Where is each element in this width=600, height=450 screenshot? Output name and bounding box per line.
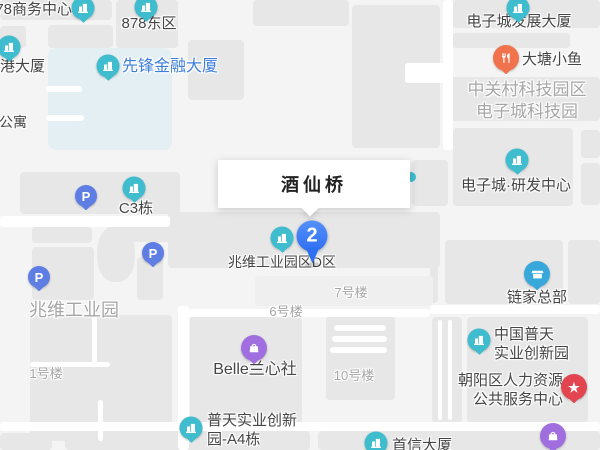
storefront-icon (531, 268, 544, 281)
numbered-marker-2[interactable]: 2 (297, 221, 328, 252)
parking-icon: P (35, 271, 44, 284)
poi-pin-lianjia-hq[interactable] (524, 261, 550, 287)
poi-pin-datang-xiaoyu[interactable] (493, 45, 519, 71)
building-block (581, 163, 600, 205)
poi-pin-belle-lanxinshe[interactable] (241, 335, 267, 361)
road (0, 422, 600, 431)
area-label-building-no10: 10号楼 (334, 367, 374, 384)
building-block (581, 130, 600, 158)
poi-pin-gang-tower[interactable] (0, 36, 21, 59)
building-icon (185, 422, 198, 435)
poi-label-china-putian[interactable]: 中国普天实业创新园 (494, 325, 569, 363)
poi-pin-xianfeng-finance[interactable] (97, 55, 120, 78)
road (405, 63, 445, 83)
poi-pin-putian-a4[interactable] (180, 417, 203, 440)
star-icon: ★ (568, 381, 580, 394)
building-icon (512, 2, 525, 15)
building-block (253, 0, 349, 26)
road (334, 325, 386, 331)
poi-pin-china-putian[interactable] (468, 329, 491, 352)
poi-label-zhaowei-d-zone[interactable]: 兆维工业园区D区 (228, 253, 336, 271)
shopping-bag-icon (547, 430, 559, 442)
building-block (568, 240, 600, 304)
poi-label-chaoyang-hr-center[interactable]: 朝阳区人力资源公共服务中心 (458, 371, 563, 409)
area-label-zgc-tech-park: 中关村科技园区电子城科技园 (468, 79, 587, 123)
poi-pin-parking-1[interactable]: P (75, 185, 97, 207)
poi-label-xianfeng-finance[interactable]: 先锋金融大厦 (122, 57, 218, 77)
building-block (32, 227, 92, 243)
building-icon (473, 334, 486, 347)
building-block (97, 226, 135, 282)
infowindow-title: 酒仙桥 (281, 171, 347, 197)
road (330, 347, 387, 353)
pin-tail-icon (501, 65, 511, 75)
poi-label-putian-a4[interactable]: 普天实业创新园-A4栋 (207, 411, 297, 449)
building-block (412, 160, 448, 206)
building-icon (511, 154, 524, 167)
poi-pin-parking-2[interactable]: P (142, 242, 164, 264)
restaurant-icon (500, 52, 512, 64)
poi-pin-dzc-rd-center[interactable] (506, 149, 529, 172)
road (448, 320, 452, 420)
building-icon (77, 2, 90, 15)
marker-tail-icon (305, 248, 319, 264)
area-label-zhaowei-industrial-park: 兆维工业园 (29, 299, 119, 322)
road (332, 336, 387, 342)
map-canvas[interactable]: 78商务中心878东区港大厦先锋金融大厦电子城发展大厦大塘小鱼电子城·研发中心C… (0, 0, 600, 450)
poi-pin-parking-3[interactable]: P (28, 266, 50, 288)
road (0, 216, 170, 227)
building-icon (276, 232, 289, 245)
area-label-building-no6: 6号楼 (269, 303, 302, 320)
building-icon (140, 1, 153, 14)
building-icon (102, 60, 115, 73)
poi-pin-shouxin-tower[interactable] (365, 432, 388, 450)
road (185, 309, 430, 317)
poi-pin-shop-poi-bottom[interactable] (540, 423, 566, 449)
road (92, 315, 97, 363)
building-block (0, 433, 52, 450)
building-block (20, 172, 180, 214)
parking-icon: P (82, 190, 91, 203)
poi-label-datang-xiaoyu[interactable]: 大塘小鱼 (522, 50, 582, 69)
map-infowindow[interactable]: 酒仙桥 (218, 160, 410, 208)
area-label-building-no1: 1号楼 (29, 365, 62, 382)
road (46, 86, 82, 92)
area-label-apartment: 公寓 (0, 113, 27, 131)
poi-label-shouxin-tower[interactable]: 首信大厦 (392, 436, 452, 450)
building-icon (370, 437, 383, 450)
shopping-bag-icon (248, 342, 260, 354)
poi-label-878-business-center[interactable]: 78商务中心 (0, 0, 72, 19)
road (98, 400, 103, 441)
poi-label-dzc-rd-center[interactable]: 电子城·研发中心 (461, 176, 571, 195)
pin-tail-icon (548, 443, 558, 450)
road (438, 320, 442, 420)
building-block (48, 25, 113, 48)
poi-pin-c3-building[interactable] (123, 177, 146, 200)
poi-pin-zhaowei-d-zone[interactable] (271, 227, 294, 250)
building-icon (128, 182, 141, 195)
road (46, 115, 84, 121)
area-label-building-no7: 7号楼 (334, 284, 367, 301)
parking-icon: P (149, 247, 158, 260)
marker-label: 2 (306, 225, 317, 248)
pin-tail-icon (78, 13, 88, 23)
poi-pin-chaoyang-hr-center[interactable]: ★ (561, 374, 587, 400)
building-icon (3, 41, 16, 54)
